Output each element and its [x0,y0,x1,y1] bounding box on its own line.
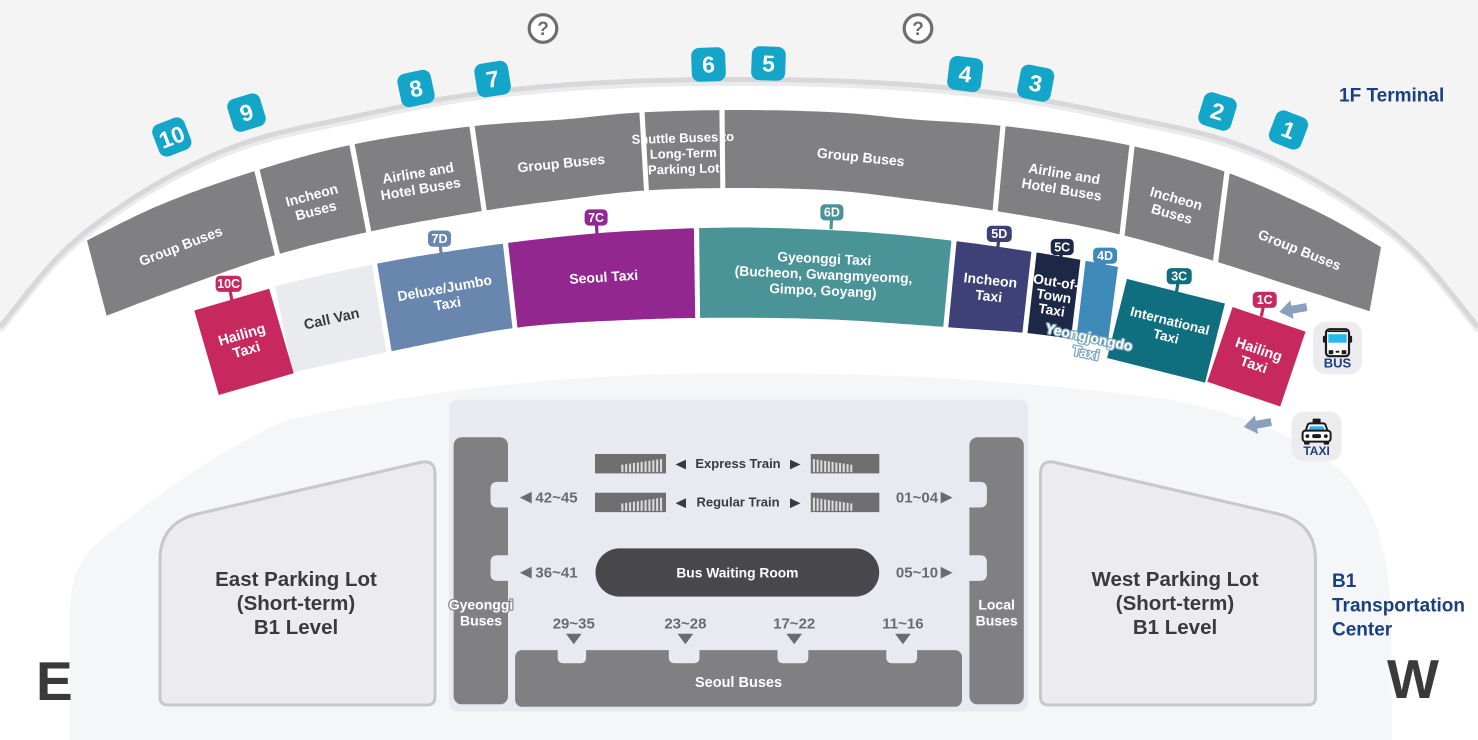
svg-text:7C: 7C [588,211,604,225]
svg-text:4D: 4D [1097,249,1113,263]
svg-text:Local: Local [978,596,1015,612]
svg-text:Shuttle Buses to: Shuttle Buses to [631,129,734,147]
svg-text:1F Terminal: 1F Terminal [1339,86,1444,107]
svg-text:10C: 10C [217,277,240,291]
svg-text:1C: 1C [1257,293,1273,307]
svg-text:Gyeonggi: Gyeonggi [449,596,514,612]
svg-text:6: 6 [702,51,716,77]
svg-text:5D: 5D [991,227,1007,241]
svg-text:W: W [1387,648,1439,710]
svg-text:6D: 6D [824,206,840,220]
svg-text:11~16: 11~16 [882,616,923,633]
svg-text:Parking Lot: Parking Lot [648,160,721,177]
svg-text:Long-Term: Long-Term [650,145,717,162]
svg-text:5C: 5C [1054,240,1070,254]
svg-text:01~04: 01~04 [896,489,939,506]
svg-text:Express Train: Express Train [695,456,780,471]
svg-text:TAXI: TAXI [1303,444,1329,458]
svg-text:West Parking Lot: West Parking Lot [1091,568,1258,591]
svg-text:3C: 3C [1171,270,1187,284]
svg-text:?: ? [537,19,549,40]
svg-text:B1: B1 [1332,571,1357,592]
svg-text:Buses: Buses [976,612,1018,628]
svg-text:23~28: 23~28 [664,616,706,633]
svg-text:5: 5 [762,50,776,76]
svg-text:05~10: 05~10 [896,564,938,581]
svg-text:B1 Level: B1 Level [254,616,338,639]
svg-text:Transportation: Transportation [1332,596,1465,617]
svg-text:42~45: 42~45 [535,489,577,506]
svg-text:BUS: BUS [1324,356,1352,371]
svg-text:7D: 7D [432,232,448,246]
svg-text:Regular Train: Regular Train [696,495,779,510]
svg-text:B1 Level: B1 Level [1133,616,1217,639]
svg-text:East Parking Lot: East Parking Lot [215,568,377,591]
svg-text:Bus Waiting Room: Bus Waiting Room [676,566,798,581]
svg-text:29~35: 29~35 [553,616,595,633]
svg-text:E: E [36,650,73,712]
svg-text:Seoul Buses: Seoul Buses [695,675,782,691]
svg-text:36~41: 36~41 [535,564,577,581]
svg-text:(Short-term): (Short-term) [237,592,355,615]
svg-text:Taxi: Taxi [975,286,1004,305]
svg-text:17~22: 17~22 [773,616,815,633]
svg-text:Center: Center [1332,620,1393,641]
svg-text:Buses: Buses [460,612,502,628]
svg-text:(Short-term): (Short-term) [1116,592,1234,615]
svg-text:?: ? [912,19,924,40]
